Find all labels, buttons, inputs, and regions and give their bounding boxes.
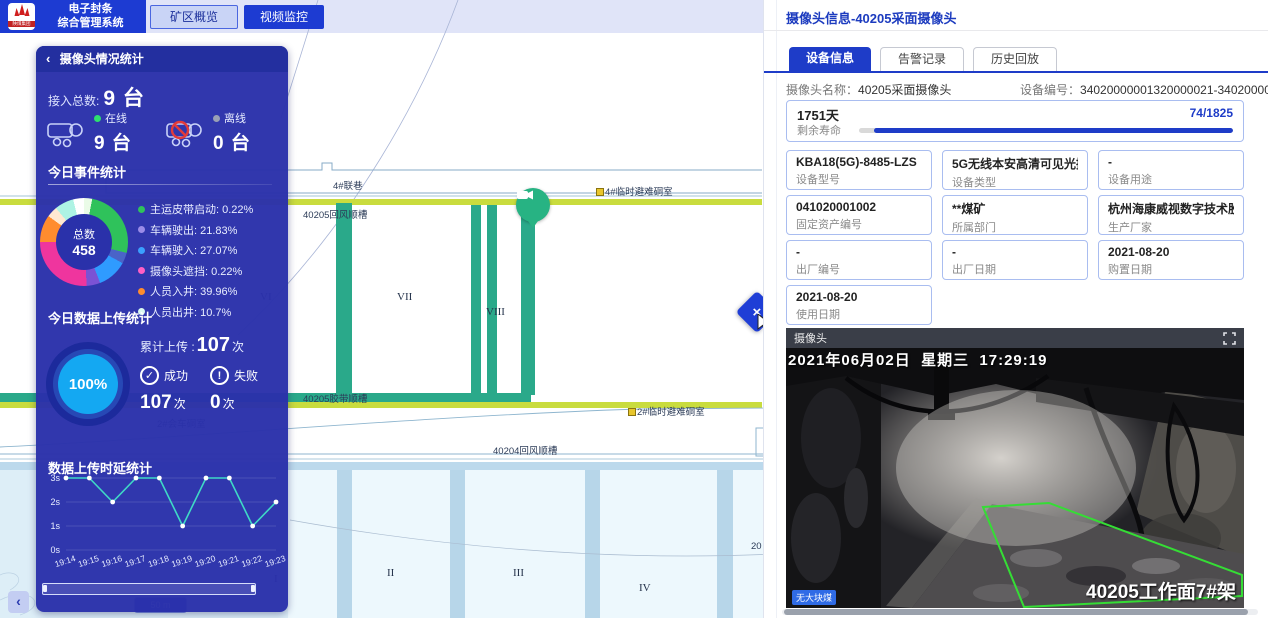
life-progress-bar	[859, 128, 1233, 133]
info-card: 2021-08-20使用日期	[786, 285, 932, 325]
map-label: 2#临时避难硐室	[628, 404, 705, 418]
life-label: 剩余寿命	[797, 122, 841, 138]
video-scene	[786, 348, 1244, 608]
info-card: KBA18(5G)-8485-LZS设备型号	[786, 150, 932, 190]
exclamation-icon: !	[210, 366, 229, 385]
upload-success: ✓ 成功	[140, 366, 210, 385]
map-label: 40204回风顺槽	[493, 443, 557, 457]
map-label: 40205回风顺槽	[303, 207, 367, 221]
remaining-life-card: 1751天 剩余寿命 74/1825	[786, 100, 1244, 142]
info-card: 5G无线本安高清可见光摄像头设备类型	[942, 150, 1088, 190]
online-cameras: 在线 9 台	[44, 110, 163, 155]
upload-section-title: 今日数据上传统计	[48, 308, 152, 327]
tab-underline	[764, 71, 1268, 73]
video-caption: 40205工作面7#架	[1086, 577, 1236, 604]
check-icon: ✓	[140, 366, 159, 385]
svg-text:19:14: 19:14	[53, 553, 77, 569]
offline-dot	[213, 115, 220, 122]
back-chevron-icon[interactable]: ‹	[46, 51, 50, 66]
svg-text:1s: 1s	[50, 521, 60, 531]
success-count: 107次	[140, 392, 210, 414]
svg-text:19:21: 19:21	[217, 553, 241, 569]
legend-item: 摄像头遮挡: 0.22%	[138, 263, 253, 279]
sidebar-collapse-button[interactable]: ‹	[8, 591, 29, 613]
svg-text:19:15: 19:15	[77, 553, 101, 569]
nav-mine-overview-button[interactable]: 矿区概览	[150, 5, 238, 29]
events-section-title: 今日事件统计	[48, 162, 126, 181]
tab-alarm-records[interactable]: 告警记录	[880, 47, 964, 71]
svg-text:19:20: 19:20	[193, 553, 217, 569]
map-label: III	[513, 567, 524, 579]
fail-count: 0次	[210, 392, 280, 414]
close-icon: ×	[753, 303, 762, 320]
online-camera-icon	[44, 116, 88, 150]
map-label: IV	[639, 582, 651, 594]
map-label: VIII	[486, 306, 505, 318]
svg-text:19:18: 19:18	[147, 553, 171, 569]
offline-cameras: 离线 0 台	[163, 110, 282, 155]
info-card: 2021-08-20购置日期	[1098, 240, 1244, 280]
tab-device-info[interactable]: 设备信息	[789, 47, 871, 71]
video-feed[interactable]: 2021年06月02日 星期三 17:29:19 无大块煤 40205工作面7#…	[786, 348, 1244, 608]
app-title: 电子封条 综合管理系统	[35, 3, 146, 31]
legend-item: 人员入井: 39.96%	[138, 283, 253, 299]
sidebar-title: 摄像头情况统计	[60, 52, 144, 66]
device-code-field: 设备编号：34020000001320000021-34020000001320…	[1020, 81, 1268, 98]
map-label: 20	[751, 541, 762, 552]
svg-text:19:17: 19:17	[123, 553, 147, 569]
divider	[48, 184, 272, 185]
camera-stats-sidebar: ‹ 摄像头情况统计 接入总数:9 台 在线 9 台	[36, 46, 288, 612]
upload-fail: ! 失败	[210, 366, 280, 385]
map-label: 40205胶带顺槽	[303, 391, 367, 405]
svg-text:19:23: 19:23	[263, 553, 286, 569]
scrollbar-thumb[interactable]	[784, 609, 1248, 615]
legend-item: 车辆驶出: 21.83%	[138, 222, 253, 238]
upload-rate-ring: 100%	[46, 342, 130, 426]
total-cameras: 接入总数:9 台	[48, 82, 145, 112]
info-card: -出厂日期	[942, 240, 1088, 280]
camera-icon	[516, 188, 534, 202]
fullscreen-icon[interactable]	[1223, 332, 1236, 345]
app-root: 4#联巷4#临时避难硐室40205回风顺槽40205胶带顺槽2#临时避难硐室40…	[0, 0, 1268, 618]
sidebar-header[interactable]: ‹ 摄像头情况统计	[36, 46, 288, 72]
info-card: 041020001002固定资产编号	[786, 195, 932, 235]
divider	[764, 30, 1268, 31]
video-timestamp: 2021年06月02日 星期三 17:29:19	[788, 349, 1047, 370]
nav-video-monitor-button[interactable]: 视频监控	[244, 5, 324, 29]
horizontal-scrollbar[interactable]	[782, 609, 1258, 615]
offline-camera-icon	[163, 116, 207, 150]
company-logo: 陕煤集团	[8, 3, 35, 30]
info-card: -出厂编号	[786, 240, 932, 280]
flame-logo-icon	[13, 3, 31, 21]
events-donut-chart: 总数 458	[40, 198, 128, 286]
video-header: 摄像头	[786, 328, 1244, 348]
svg-text:19:19: 19:19	[170, 553, 194, 569]
map-camera-marker[interactable]	[516, 188, 550, 222]
map-label: 4#联巷	[333, 178, 363, 192]
video-detection-badge: 无大块煤	[792, 590, 836, 605]
svg-text:3s: 3s	[50, 473, 60, 483]
info-card: -设备用途	[1098, 150, 1244, 190]
legend-item: 人员出井: 10.7%	[138, 304, 253, 320]
camera-name-field: 摄像头名称：40205采面摄像头	[786, 83, 951, 97]
tab-history-playback[interactable]: 历史回放	[973, 47, 1057, 71]
legend-item: 主运皮带启动: 0.22%	[138, 201, 253, 217]
logo-caption: 陕煤集团	[8, 21, 35, 27]
video-block: 摄像头	[786, 328, 1244, 608]
svg-text:2s: 2s	[50, 497, 60, 507]
life-ratio: 74/1825	[1190, 106, 1233, 120]
camera-info-panel: 摄像头信息-40205采面摄像头 设备信息告警记录历史回放 摄像头名称：4020…	[763, 0, 1268, 618]
upload-total: 累计上传 :107次	[140, 334, 280, 357]
chart-range-slider[interactable]	[42, 583, 256, 595]
svg-text:0s: 0s	[50, 545, 60, 555]
svg-text:19:16: 19:16	[100, 553, 124, 569]
svg-text:19:22: 19:22	[240, 553, 264, 569]
map-label: II	[387, 567, 394, 579]
map-label: 4#临时避难硐室	[596, 184, 673, 198]
info-card: **煤矿所属部门	[942, 195, 1088, 235]
delay-line-chart: 0s1s2s3s19:1419:1519:1619:1719:1819:1919…	[38, 470, 286, 580]
legend-item: 车辆驶入: 27.07%	[138, 242, 253, 258]
panel-title: 摄像头信息-40205采面摄像头	[786, 8, 956, 27]
online-dot	[94, 115, 101, 122]
app-logo-block: 陕煤集团 电子封条 综合管理系统	[0, 0, 146, 33]
info-card: 杭州海康威视数字技术股份有...生产厂家	[1098, 195, 1244, 235]
upload-rate-value: 100%	[58, 354, 118, 414]
map-label: VII	[397, 291, 412, 303]
